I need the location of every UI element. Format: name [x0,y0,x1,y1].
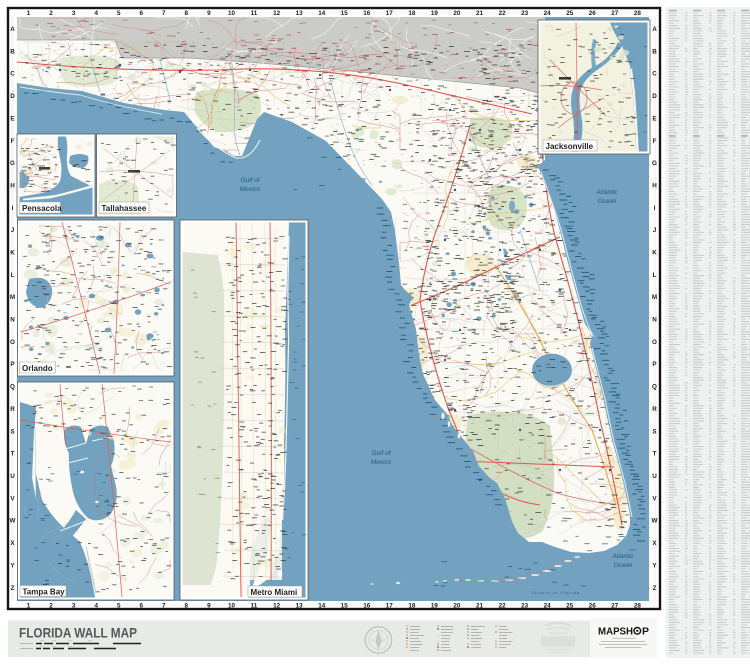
svg-text:P: P [10,361,14,368]
svg-text:15: 15 [341,603,349,610]
svg-text:21: 21 [476,10,484,17]
svg-text:4: 4 [94,10,98,17]
svg-text:J: J [11,227,15,234]
svg-text:S: S [10,428,14,435]
svg-text:2: 2 [49,603,53,610]
svg-text:24: 24 [544,603,552,610]
svg-text:FLORIDA WALL MAP: FLORIDA WALL MAP [19,625,137,641]
svg-text:Ocean: Ocean [614,562,633,569]
svg-text:O: O [10,339,15,346]
svg-text:U: U [10,473,15,480]
svg-text:Atlantic: Atlantic [596,189,619,196]
svg-text:P: P [652,361,656,368]
svg-text:S: S [652,428,656,435]
svg-text:3: 3 [72,10,76,17]
svg-text:9: 9 [207,603,211,610]
svg-text:K: K [652,250,657,257]
svg-text:9: 9 [207,10,211,17]
svg-text:Tampa Bay: Tampa Bay [23,587,66,596]
svg-text:11: 11 [251,10,258,17]
svg-text:19: 19 [431,10,439,17]
svg-text:15: 15 [341,10,349,17]
svg-text:12: 12 [273,603,281,610]
svg-text:Z: Z [11,585,15,592]
svg-text:D: D [652,93,657,100]
svg-text:10: 10 [228,603,236,610]
svg-text:5: 5 [117,10,121,17]
svg-text:13: 13 [296,603,304,610]
svg-text:18: 18 [408,603,416,610]
svg-text:6: 6 [139,603,143,610]
svg-text:8: 8 [185,603,189,610]
svg-text:Metro Miami: Metro Miami [251,588,298,597]
svg-text:1: 1 [27,10,31,17]
svg-text:M: M [10,294,15,301]
svg-text:16: 16 [363,603,371,610]
svg-text:28: 28 [634,603,642,610]
svg-text:N: N [652,317,657,324]
svg-text:16: 16 [363,10,371,17]
svg-text:17: 17 [386,10,394,17]
svg-text:Q: Q [652,384,657,391]
svg-text:14: 14 [318,603,326,610]
svg-text:4: 4 [94,603,98,610]
svg-text:F: F [653,138,657,145]
svg-text:L: L [11,272,15,279]
svg-text:20: 20 [453,603,461,610]
svg-text:7: 7 [162,10,166,17]
svg-text:C: C [652,71,657,78]
svg-text:3: 3 [72,603,76,610]
svg-text:Mexico: Mexico [371,459,392,466]
svg-text:G: G [652,160,657,167]
svg-text:I: I [654,205,656,212]
svg-text:6: 6 [139,10,143,17]
svg-text:Gulf of: Gulf of [372,450,392,457]
svg-text:23: 23 [521,10,529,17]
svg-text:Tallahassee: Tallahassee [102,204,147,213]
svg-text:18: 18 [408,10,416,17]
svg-text:10: 10 [228,10,236,17]
svg-text:E: E [652,115,656,122]
svg-text:L: L [653,272,657,279]
svg-text:B: B [10,48,15,55]
svg-text:11: 11 [251,603,258,610]
svg-text:22: 22 [499,10,507,17]
svg-text:P: P [642,626,649,638]
svg-text:H: H [652,183,657,190]
svg-text:F: F [11,138,15,145]
svg-text:25: 25 [566,603,574,610]
svg-text:Q: Q [10,384,15,391]
svg-text:8: 8 [185,10,189,17]
svg-text:T: T [653,451,657,458]
svg-text:B: B [652,48,657,55]
svg-text:27: 27 [611,10,619,17]
svg-text:Z: Z [653,585,657,592]
svg-text:5: 5 [117,603,121,610]
svg-text:T: T [11,451,15,458]
svg-text:Gulf of: Gulf of [241,177,261,184]
svg-text:A: A [10,26,15,33]
svg-text:26: 26 [589,603,597,610]
svg-text:12: 12 [273,10,281,17]
svg-text:Atlantic: Atlantic [612,553,635,560]
svg-text:24: 24 [544,10,552,17]
svg-text:G: G [10,160,15,167]
svg-text:Straits of Florida: Straits of Florida [532,590,581,595]
svg-text:Ocean: Ocean [598,198,617,205]
svg-text:13: 13 [296,10,304,17]
svg-text:D: D [10,93,15,100]
svg-text:28: 28 [634,10,642,17]
svg-text:E: E [10,115,14,122]
svg-text:20: 20 [453,10,461,17]
svg-text:17: 17 [386,603,394,610]
svg-text:M: M [652,294,657,301]
svg-text:23: 23 [521,603,529,610]
svg-text:Orlando: Orlando [22,364,53,373]
svg-text:MAPSH: MAPSH [598,626,633,638]
svg-text:Jacksonville: Jacksonville [546,142,594,151]
svg-text:25: 25 [566,10,574,17]
svg-text:Mexico: Mexico [240,186,261,193]
svg-text:N: N [10,317,15,324]
svg-text:2: 2 [49,10,53,17]
svg-text:R: R [652,406,657,413]
svg-text:14: 14 [318,10,326,17]
svg-text:A: A [652,26,657,33]
svg-text:W: W [652,518,658,525]
svg-text:W: W [10,518,16,525]
svg-text:7: 7 [162,603,166,610]
svg-text:19: 19 [431,603,439,610]
svg-text:I: I [12,205,14,212]
svg-text:H: H [10,183,15,190]
svg-text:1: 1 [27,603,31,610]
svg-text:J: J [653,227,657,234]
svg-text:22: 22 [499,603,507,610]
svg-text:O: O [652,339,657,346]
svg-text:Pensacola: Pensacola [22,204,62,213]
svg-text:26: 26 [589,10,597,17]
svg-text:U: U [652,473,657,480]
svg-text:C: C [10,71,15,78]
svg-text:K: K [10,250,15,257]
svg-text:21: 21 [476,603,484,610]
svg-text:R: R [10,406,15,413]
svg-text:27: 27 [611,603,619,610]
